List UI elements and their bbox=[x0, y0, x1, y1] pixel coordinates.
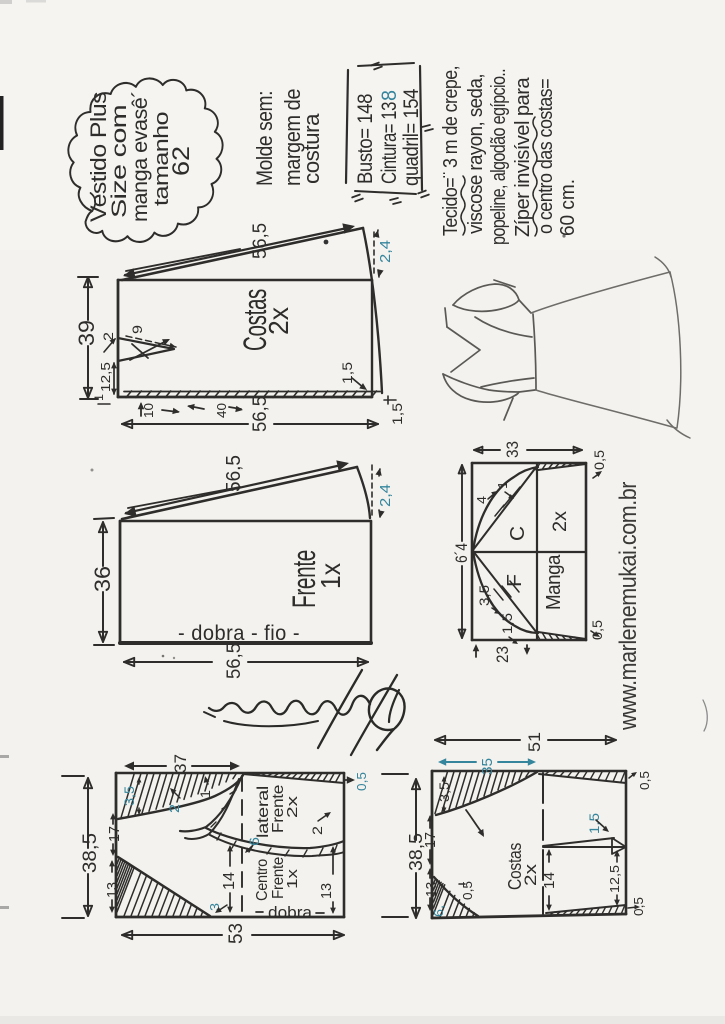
svg-text:manga evasê´: manga evasê´ bbox=[129, 91, 152, 222]
svg-text:6,: 6, bbox=[431, 905, 446, 917]
svg-text:dobra: dobra bbox=[268, 903, 313, 922]
svg-text:33: 33 bbox=[503, 441, 522, 458]
svg-text:10: 10 bbox=[141, 403, 156, 418]
svg-text:51: 51 bbox=[525, 732, 544, 752]
svg-text:17: 17 bbox=[106, 826, 123, 842]
svg-text:56,5: 56,5 bbox=[250, 396, 271, 432]
svg-text:3,5: 3,5 bbox=[121, 786, 137, 806]
svg-text:2,4: 2,4 bbox=[377, 240, 394, 263]
svg-text:costura: costura bbox=[299, 113, 324, 184]
svg-text:Cintura= 13: Cintura= 13 bbox=[378, 102, 401, 184]
svg-text:Zíper invisível para: Zíper invisível para bbox=[512, 77, 534, 237]
svg-text:56,5: 56,5 bbox=[250, 223, 271, 259]
svg-text:www.marlenemukai.com.br: www.marlenemukai.com.br bbox=[615, 482, 642, 731]
svg-text:9: 9 bbox=[129, 325, 145, 334]
svg-text:1,5: 1,5 bbox=[389, 403, 405, 425]
svg-text:8: 8 bbox=[378, 90, 401, 101]
svg-text:3,5: 3,5 bbox=[476, 585, 492, 606]
svg-text:39: 39 bbox=[74, 320, 99, 346]
svg-text:13.: 13. bbox=[423, 878, 440, 897]
svg-text:2x: 2x bbox=[521, 863, 540, 886]
svg-text:2: 2 bbox=[309, 826, 325, 835]
svg-text:0,5: 0,5 bbox=[354, 772, 369, 791]
svg-text:13: 13 bbox=[318, 883, 335, 899]
svg-text:38,5: 38,5 bbox=[80, 833, 101, 873]
svg-text:1: 1 bbox=[495, 481, 510, 489]
svg-text:4: 4 bbox=[474, 496, 489, 504]
svg-text:23: 23 bbox=[493, 646, 512, 663]
svg-text:13: 13 bbox=[104, 882, 121, 898]
svg-text:quadril= 154: quadril= 154 bbox=[400, 88, 423, 186]
svg-text:F: F bbox=[504, 574, 526, 587]
svg-text:C: C bbox=[507, 526, 529, 541]
svg-text:17: 17 bbox=[422, 832, 439, 848]
svg-text:2,4: 2,4 bbox=[377, 484, 394, 507]
svg-text:2x: 2x bbox=[284, 795, 301, 818]
svg-text:o centro das costas=: o centro das costas= bbox=[535, 79, 557, 234]
svg-text:40: 40 bbox=[214, 403, 229, 418]
svg-text:Busto= 148: Busto= 148 bbox=[354, 94, 377, 184]
svg-text:3,5: 3,5 bbox=[436, 782, 452, 802]
svg-text:53: 53 bbox=[226, 923, 247, 944]
svg-text:1,5: 1,5 bbox=[499, 613, 515, 634]
svg-text:0,5: 0,5 bbox=[637, 771, 652, 790]
svg-text:56,5: 56,5 bbox=[223, 455, 245, 492]
svg-text:37: 37 bbox=[171, 754, 190, 773]
svg-text:2x: 2x bbox=[550, 510, 571, 532]
svg-text:12,5: 12,5 bbox=[607, 865, 622, 893]
svg-text:1: 1 bbox=[92, 394, 106, 401]
svg-text:14: 14 bbox=[541, 872, 558, 889]
svg-text:14: 14 bbox=[221, 872, 238, 890]
svg-text:62: 62 bbox=[168, 146, 195, 176]
svg-text:12,5: 12,5 bbox=[98, 362, 113, 392]
svg-text:Tecido=¨ 3 m de crepe,: Tecido=¨ 3 m de crepe, bbox=[440, 66, 462, 236]
svg-text:1: 1 bbox=[197, 790, 213, 798]
svg-text:2: 2 bbox=[166, 804, 182, 813]
svg-text:1x: 1x bbox=[284, 868, 301, 889]
svg-text:- dobra - fio -: - dobra - fio - bbox=[178, 622, 300, 645]
svg-text:Size com: Size com bbox=[108, 105, 131, 218]
svg-text:1,5: 1,5 bbox=[339, 362, 355, 384]
svg-text:36: 36 bbox=[90, 566, 115, 592]
svg-text:Manga: Manga bbox=[543, 554, 565, 610]
svg-text:6´4: 6´4 bbox=[452, 543, 471, 563]
svg-text:0,5: 0,5 bbox=[589, 620, 605, 640]
svg-text:56,5: 56,5 bbox=[224, 643, 245, 679]
svg-text:Centro: Centro bbox=[254, 859, 271, 901]
svg-text:Molde sem:: Molde sem: bbox=[252, 91, 277, 186]
svg-text:popeline, algodão egípcio..: popeline, algodão egípcio.. bbox=[488, 69, 510, 245]
svg-text:1x: 1x bbox=[315, 563, 346, 589]
svg-text:2x: 2x bbox=[263, 307, 294, 335]
svg-text:35: 35 bbox=[479, 758, 496, 775]
svg-text:0,5: 0,5 bbox=[591, 450, 607, 470]
svg-text:60 cm.: 60 cm. bbox=[557, 179, 579, 236]
svg-text:viscose rayon, seda,: viscose rayon, seda, bbox=[465, 74, 487, 234]
